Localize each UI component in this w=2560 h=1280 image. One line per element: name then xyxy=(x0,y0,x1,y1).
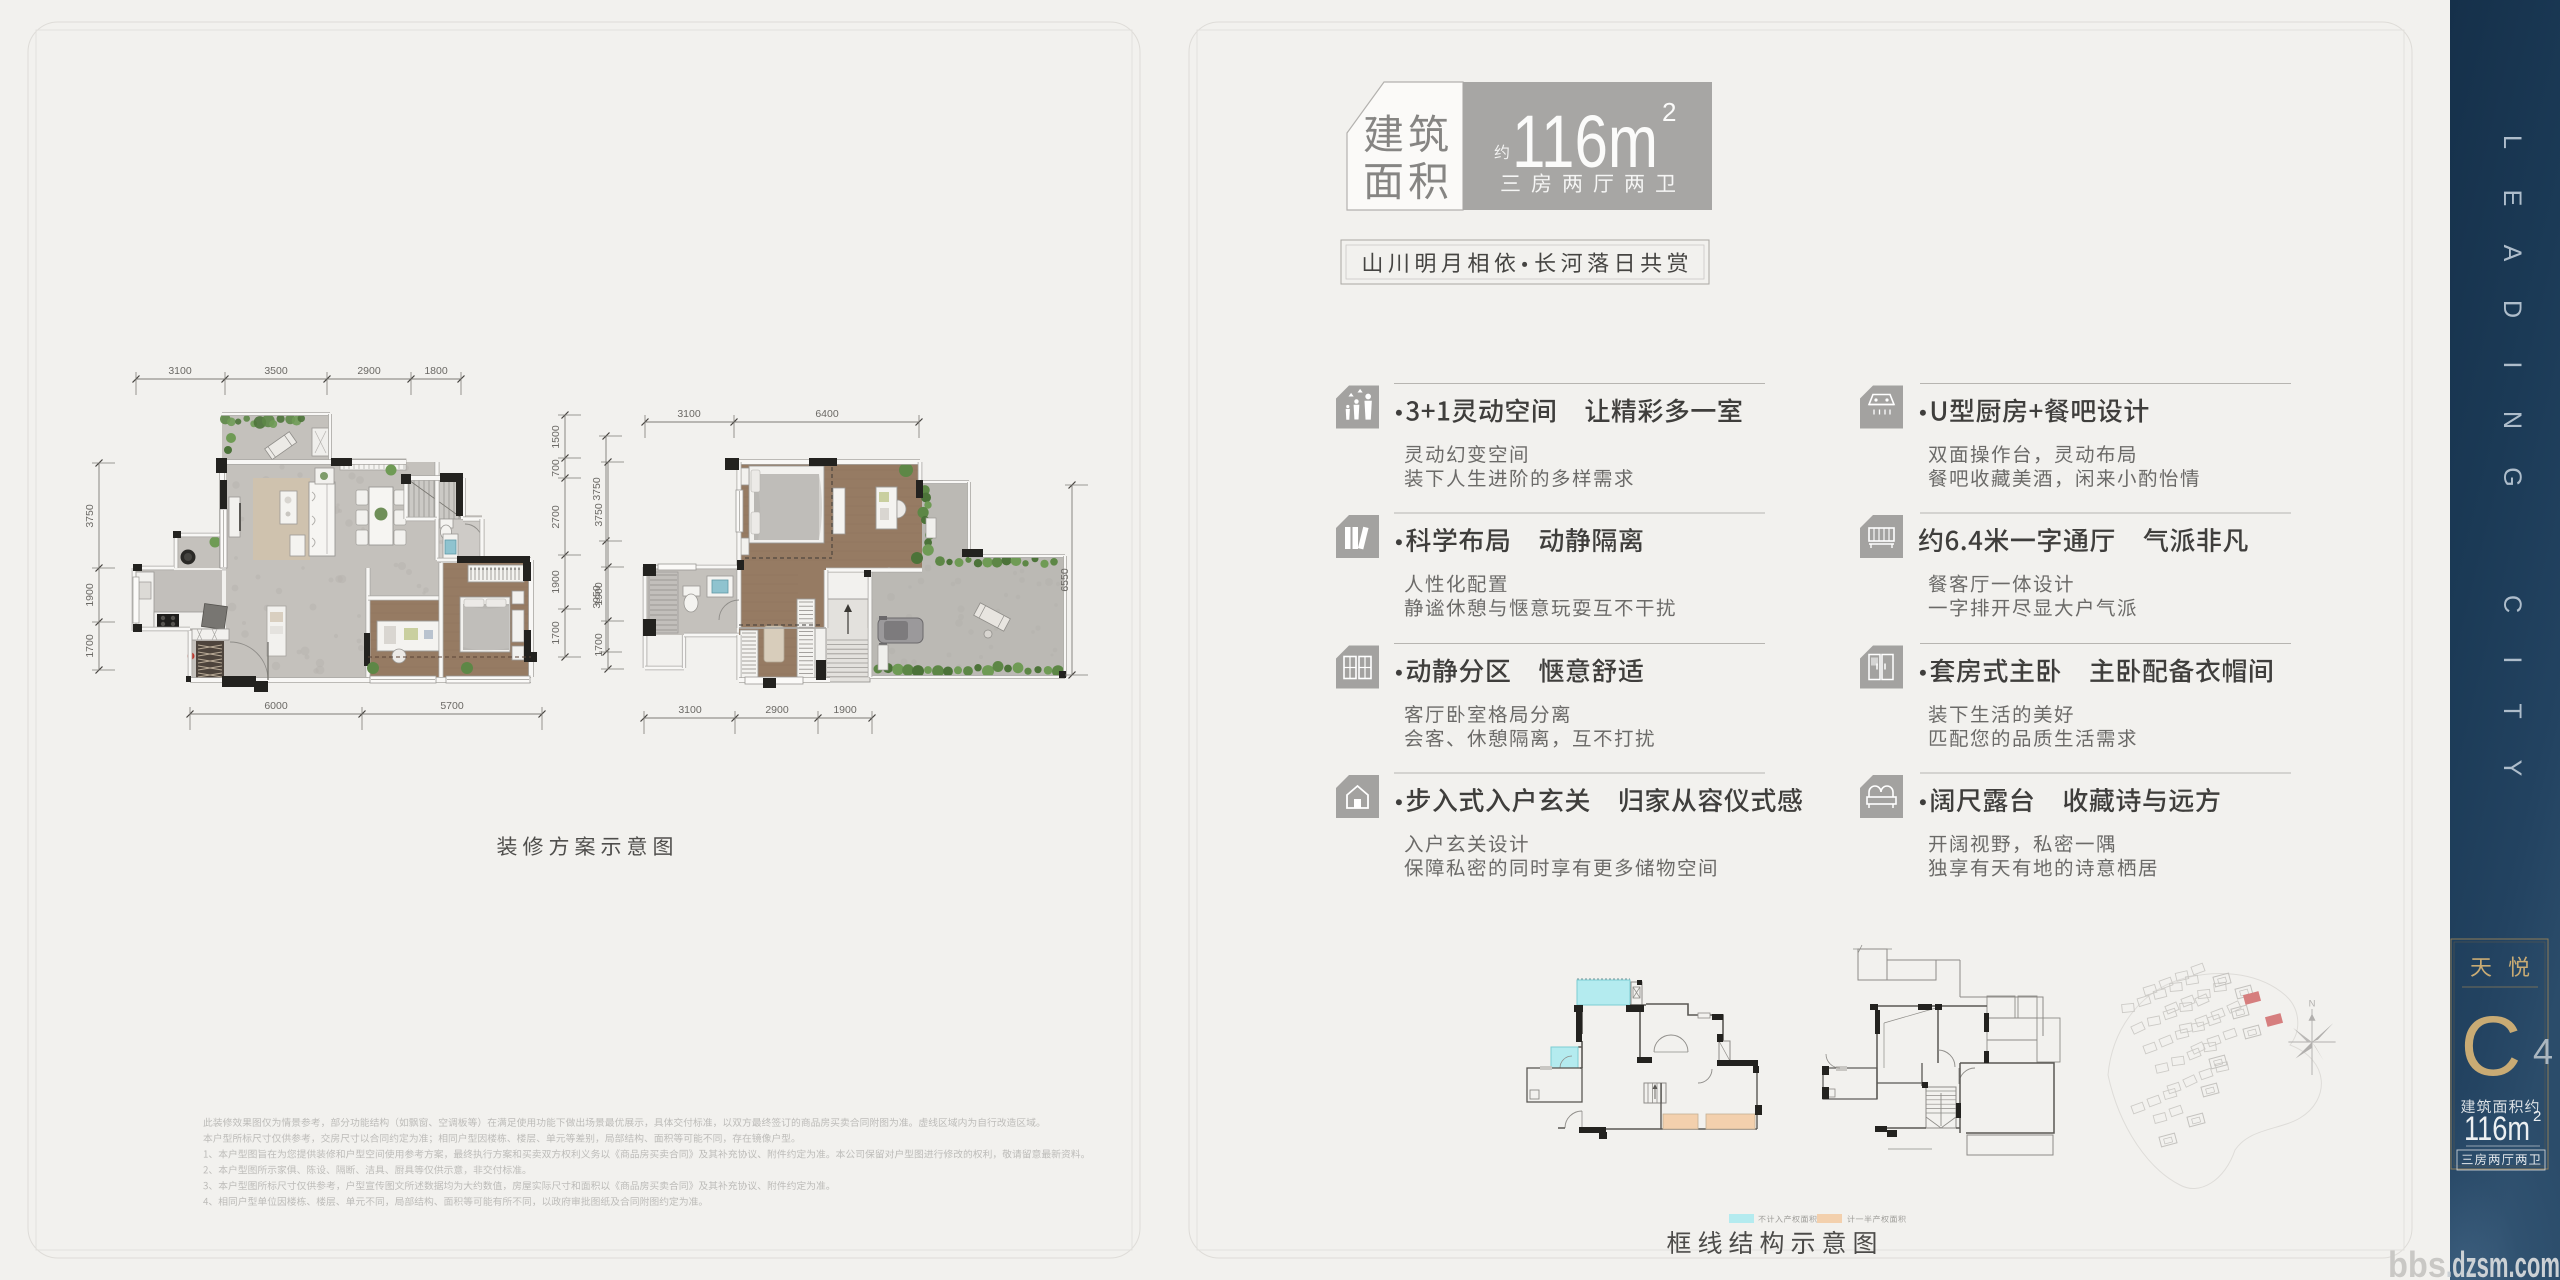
svg-text:Y: Y xyxy=(2498,760,2526,777)
svg-text:L: L xyxy=(2498,135,2526,149)
svg-text:116m: 116m xyxy=(2464,1110,2530,1148)
svg-text:3750: 3750 xyxy=(591,477,603,501)
svg-text:1900: 1900 xyxy=(550,570,562,594)
svg-text:bbs: bbs xyxy=(2388,1244,2446,1280)
svg-text:D: D xyxy=(2498,300,2526,318)
svg-text:1500: 1500 xyxy=(550,425,562,449)
svg-text:2: 2 xyxy=(1662,97,1676,127)
svg-text:3750: 3750 xyxy=(84,504,96,528)
svg-text:3100: 3100 xyxy=(678,704,702,716)
svg-text:3100: 3100 xyxy=(677,408,701,420)
svg-text:I: I xyxy=(2498,657,2526,664)
svg-text:3100: 3100 xyxy=(168,365,192,377)
svg-text:N: N xyxy=(2498,411,2526,429)
svg-text:4: 4 xyxy=(2533,1031,2553,1072)
svg-text:1800: 1800 xyxy=(424,365,448,377)
svg-text:6000: 6000 xyxy=(264,700,288,712)
svg-text:1900: 1900 xyxy=(593,582,605,606)
svg-text:A: A xyxy=(2498,245,2526,262)
svg-text:116m: 116m xyxy=(1512,100,1658,183)
svg-text:3500: 3500 xyxy=(264,365,288,377)
svg-text:5700: 5700 xyxy=(440,700,464,712)
svg-text:1900: 1900 xyxy=(84,583,96,607)
svg-text:2900: 2900 xyxy=(357,365,381,377)
svg-text:2: 2 xyxy=(2533,1108,2541,1125)
svg-text:.dzsm.com: .dzsm.com xyxy=(2446,1244,2560,1280)
svg-text:E: E xyxy=(2498,190,2526,207)
svg-text:2900: 2900 xyxy=(765,704,789,716)
svg-text:G: G xyxy=(2498,467,2526,486)
svg-text:1900: 1900 xyxy=(833,704,857,716)
svg-text:6550: 6550 xyxy=(1059,568,1071,592)
svg-text:2700: 2700 xyxy=(550,505,562,529)
svg-text:3750: 3750 xyxy=(593,503,605,527)
svg-text:1700: 1700 xyxy=(84,634,96,658)
svg-text:C: C xyxy=(2461,999,2522,1093)
svg-text:T: T xyxy=(2498,703,2526,718)
svg-text:N: N xyxy=(2309,999,2316,1010)
svg-text:700: 700 xyxy=(550,459,562,477)
svg-text:1700: 1700 xyxy=(593,633,605,657)
svg-text:1700: 1700 xyxy=(550,621,562,645)
svg-text:6400: 6400 xyxy=(815,408,839,420)
svg-text:C: C xyxy=(2498,595,2526,613)
svg-text:I: I xyxy=(2498,362,2526,369)
